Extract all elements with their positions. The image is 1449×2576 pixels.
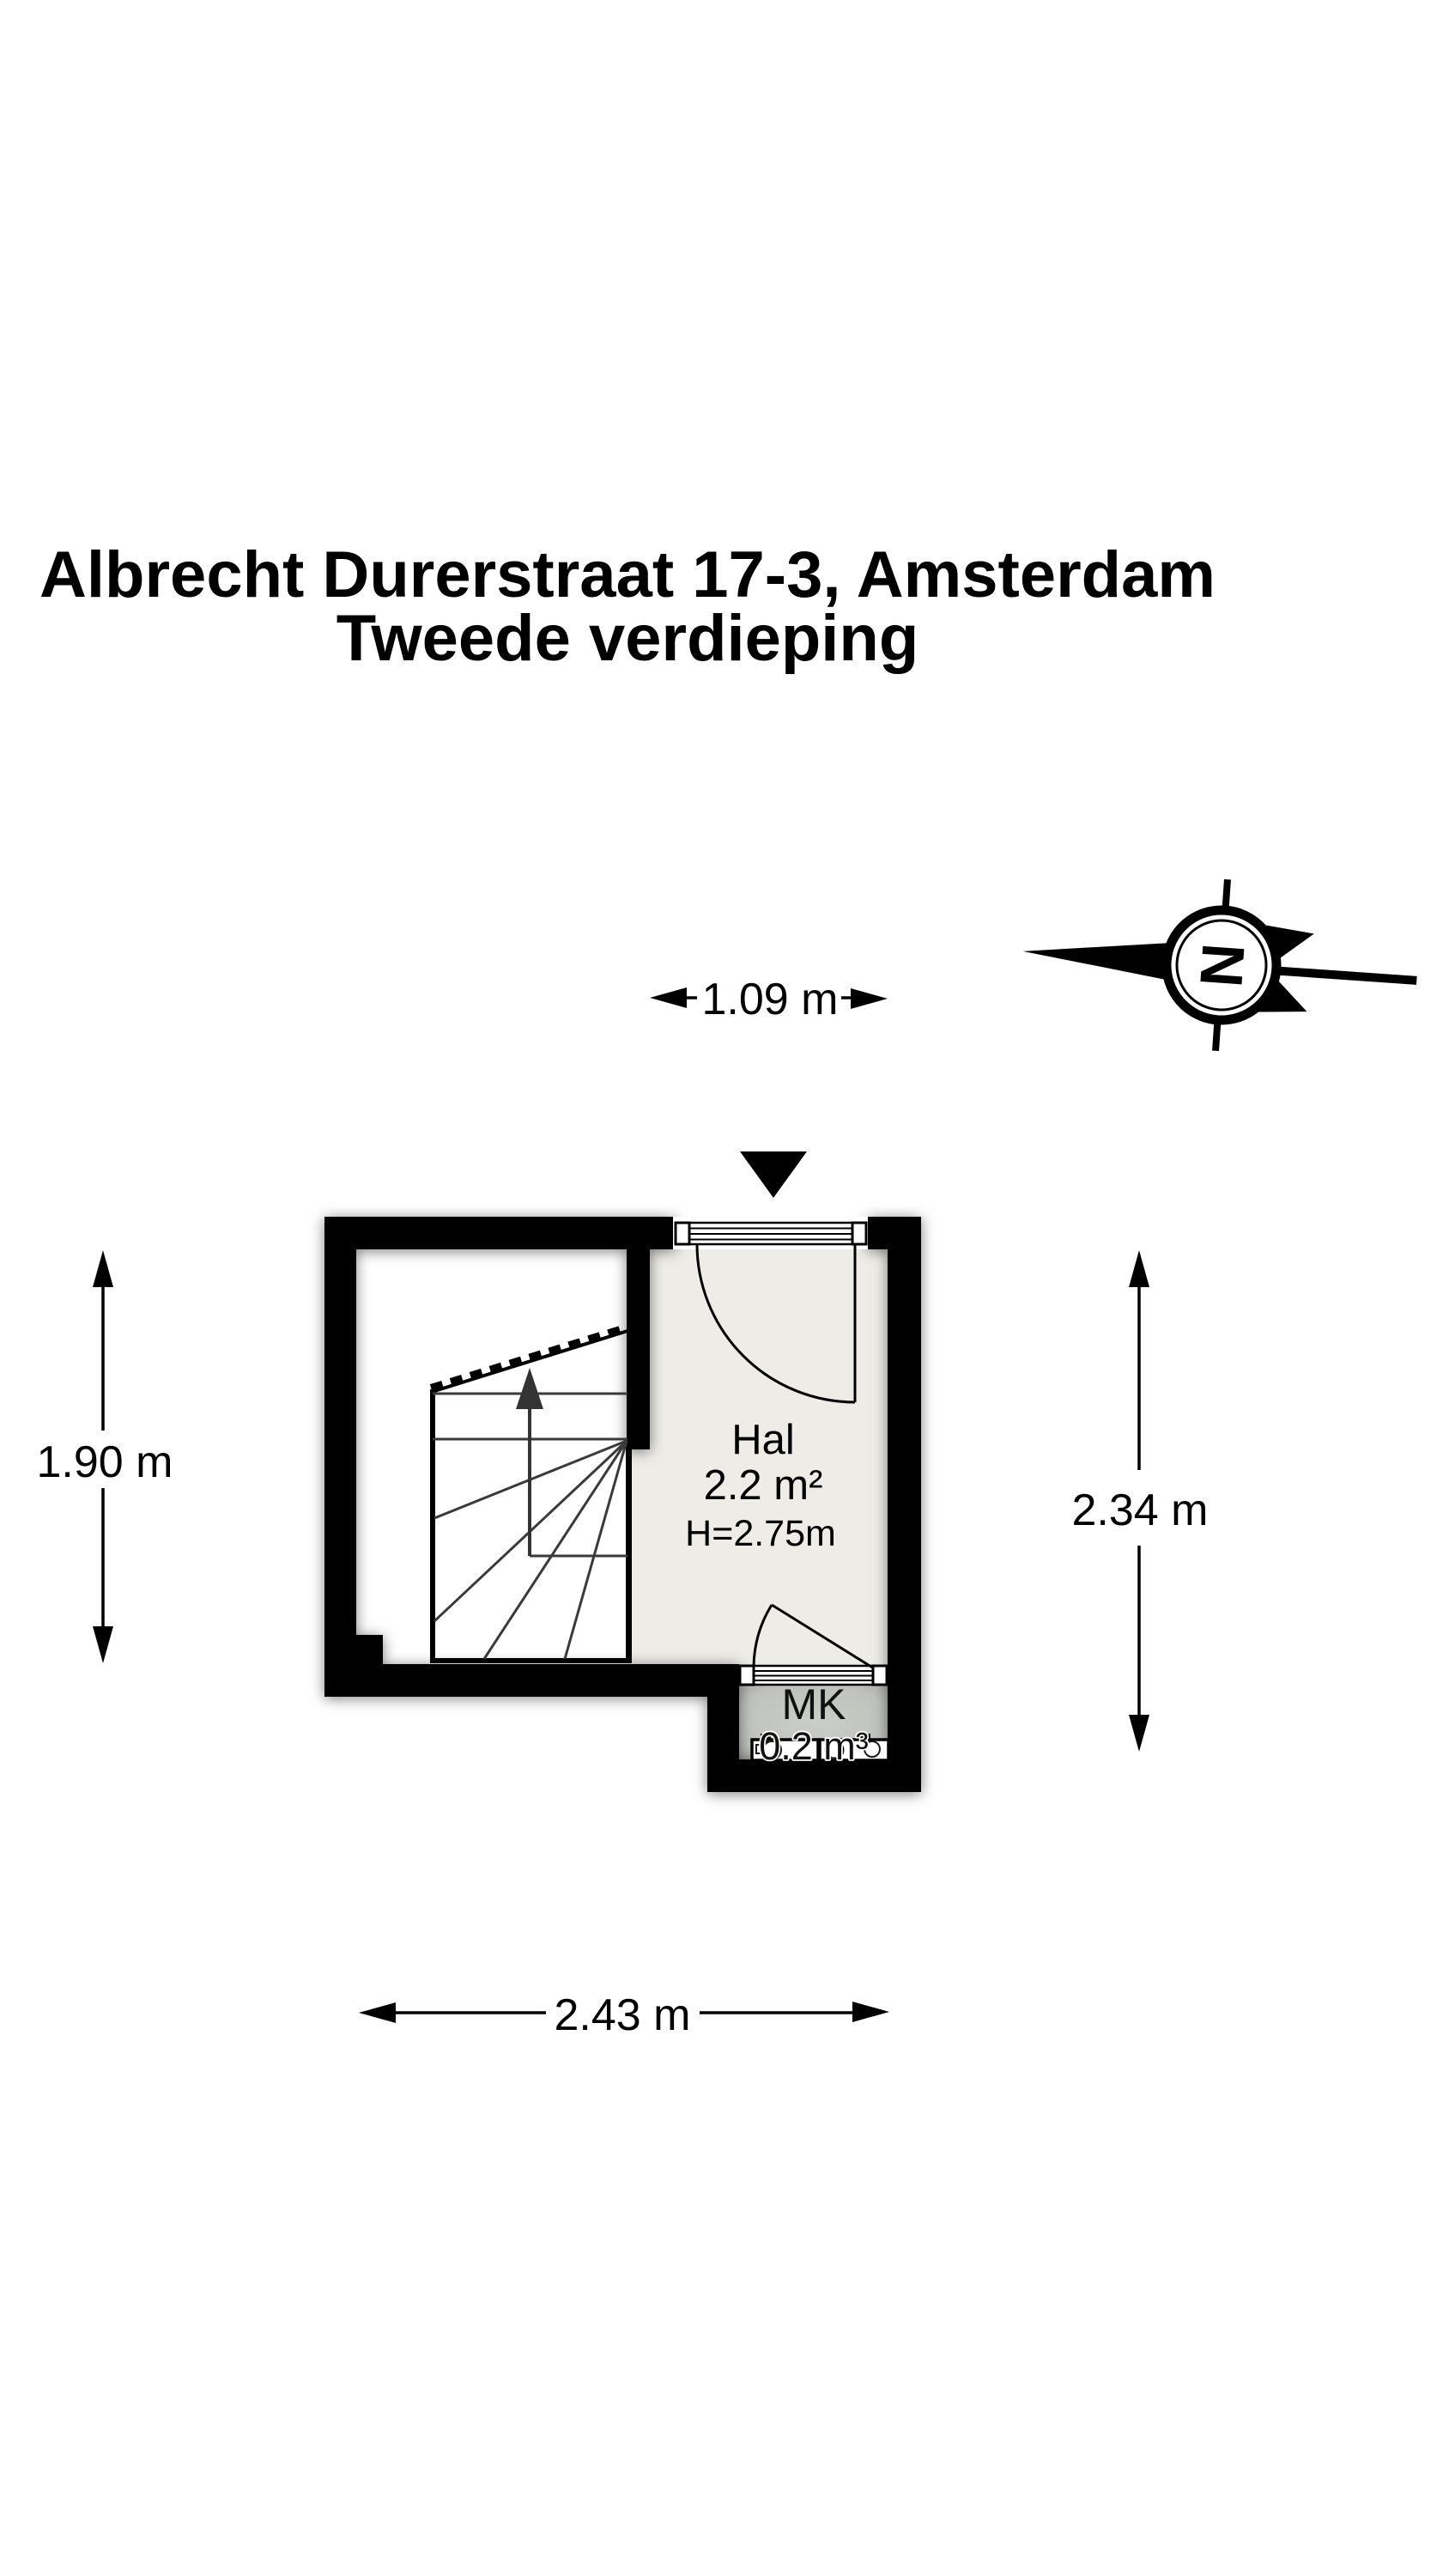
svg-text:N: N xyxy=(1187,941,1257,989)
svg-text:MK: MK xyxy=(782,1680,846,1728)
svg-text:2.34 m: 2.34 m xyxy=(1072,1485,1209,1535)
svg-text:Albrecht Durerstraat 17-3, Ams: Albrecht Durerstraat 17-3, Amsterdam xyxy=(39,538,1216,611)
svg-text:Tweede verdieping: Tweede verdieping xyxy=(336,602,919,675)
svg-text:2.2 m²: 2.2 m² xyxy=(704,1462,823,1509)
svg-text:H=2.75m: H=2.75m xyxy=(685,1513,836,1554)
svg-text:Hal: Hal xyxy=(731,1417,795,1463)
svg-text:0.2 m³: 0.2 m³ xyxy=(759,1724,869,1768)
svg-text:1.90 m: 1.90 m xyxy=(37,1437,173,1487)
svg-text:2.43 m: 2.43 m xyxy=(555,1990,691,2040)
svg-text:1.09 m: 1.09 m xyxy=(702,975,839,1024)
